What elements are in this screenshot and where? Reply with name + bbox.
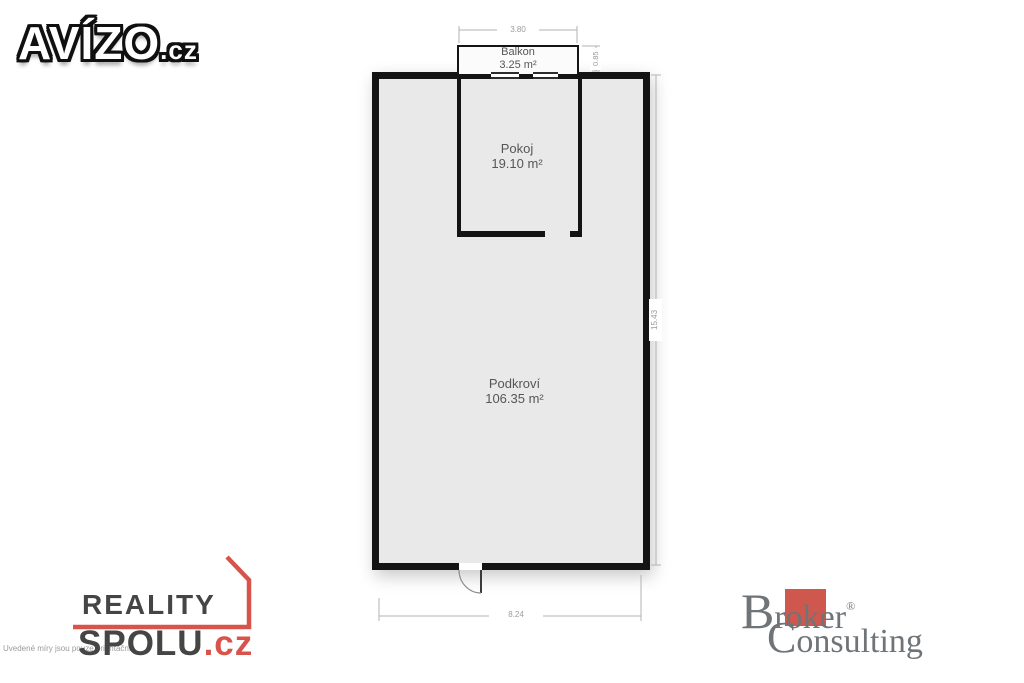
dimension-balcony-depth: 0.85	[590, 48, 601, 70]
room-label-podkrovi: Podkroví 106.35 m²	[442, 376, 587, 406]
consulting-rest: onsulting	[796, 623, 923, 660]
room-area: 106.35 m²	[442, 391, 587, 406]
reality-spolu-logo-line2: SPOLU.cz	[78, 624, 253, 664]
reality-spolu-word: SPOLU	[78, 624, 204, 663]
consulting-initial: C	[767, 613, 796, 662]
room-label-pokoj: Pokoj 19.10 m²	[447, 141, 587, 171]
room-area: 3.25 m²	[457, 59, 579, 72]
reality-spolu-tld: .cz	[204, 624, 254, 663]
entry-door-opening	[459, 563, 482, 570]
pokoj-wall-bottom	[457, 231, 545, 237]
pokoj-wall-stub	[570, 231, 582, 237]
room-name: Pokoj	[447, 141, 587, 156]
room-name: Podkroví	[442, 376, 587, 391]
avizo-logo-tld: .cz	[160, 35, 198, 65]
room-area: 19.10 m²	[447, 156, 587, 171]
registered-trademark-icon: ®	[846, 599, 855, 613]
floorplan-image: AVÍZO.cz Balkon 3.25 m² Pokoj 19.10 m² P…	[0, 0, 1024, 683]
dimension-building-height: 15.43	[649, 299, 662, 341]
room-name: Balkon	[457, 46, 579, 59]
entry-door-swing	[459, 570, 481, 593]
broker-consulting-logo-line2: Consulting	[767, 612, 923, 663]
room-label-balkon: Balkon 3.25 m²	[457, 46, 579, 72]
reality-spolu-logo-line1: REALITY	[82, 589, 216, 621]
dimension-balcony-width: 3.80	[497, 25, 539, 35]
balcony-door-opening-right	[533, 72, 558, 79]
avizo-logo-text: AVÍZO	[18, 17, 160, 69]
balcony-door-opening-left	[491, 72, 519, 79]
dimension-building-width: 8.24	[489, 610, 543, 620]
avizo-logo: AVÍZO.cz	[18, 16, 198, 70]
